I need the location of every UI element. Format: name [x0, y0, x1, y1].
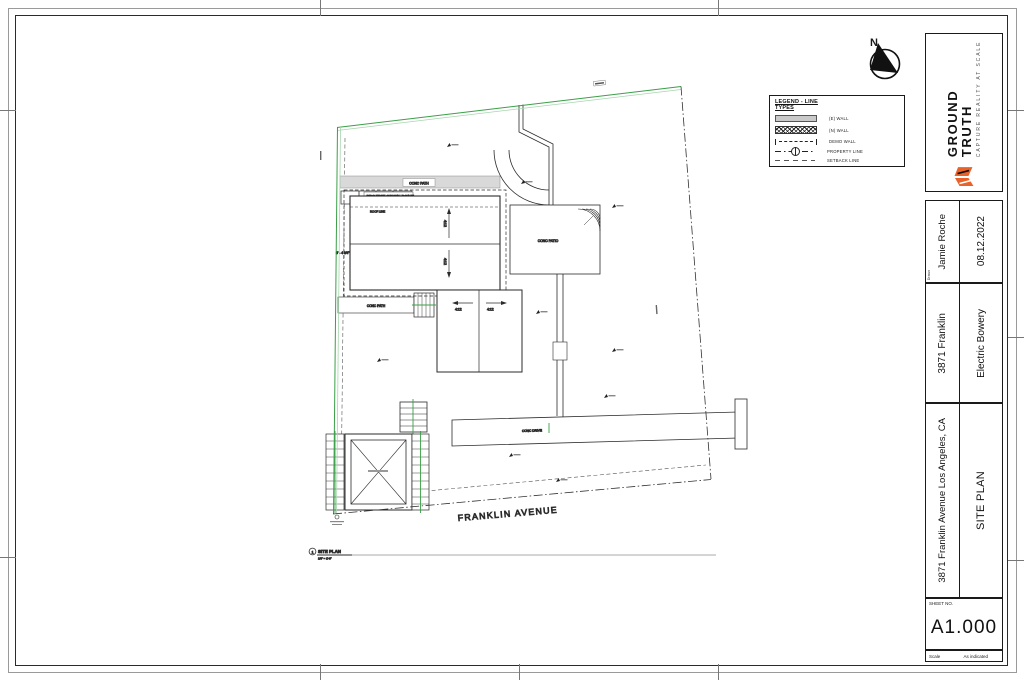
micro-label — [656, 305, 658, 314]
pl-symbol-icon — [791, 147, 800, 156]
sheet-number: A1.000 — [926, 607, 1002, 649]
existing-wall-swatch — [775, 115, 817, 122]
sheet-number-box: SHEET NO. A1.000 — [925, 598, 1003, 650]
stoop — [400, 402, 427, 432]
conc-drive — [452, 412, 738, 446]
callout-title: SITE PLAN — [318, 549, 341, 554]
street-name: FRANKLIN AVENUE — [457, 505, 558, 523]
legend-row-new-wall: (N) WALL — [775, 126, 904, 134]
legend-row-property-line: PROPERTY LINE — [775, 149, 904, 154]
sheet-no-label: SHEET NO. — [929, 601, 953, 606]
sheet-title-cell: SITE PLAN — [959, 404, 1002, 597]
legend-row-setback-line: SETBACK LINE — [775, 158, 904, 163]
brand-name: GROUND TRUTH — [946, 38, 974, 157]
project-name-cell: 3871 Franklin — [926, 284, 959, 402]
callout-scale: 1/8" = 1'-0" — [318, 557, 332, 561]
property-line-swatch — [775, 151, 815, 152]
legend-row-existing-wall: (E) WALL — [775, 115, 904, 122]
micro-label — [593, 80, 605, 86]
scale-label: Scale — [929, 654, 940, 659]
firm-name: Electric Bowery — [976, 309, 987, 378]
conc-drive-label: CONC DRIVE — [522, 428, 542, 433]
legend-label: DEMO WALL — [829, 139, 856, 144]
setback-line-swatch — [775, 160, 815, 161]
brand-tagline: CAPTURE REALITY AT SCALE — [976, 40, 982, 156]
legend-label: SETBACK LINE — [827, 158, 859, 163]
curved-wall-inner — [509, 150, 549, 190]
demo-wall-swatch — [775, 139, 817, 145]
micro-label — [320, 151, 321, 160]
drawn-label: Drawn — [927, 270, 931, 280]
conc-path-label: CONC PATH — [409, 181, 429, 185]
property-line-north — [337, 87, 681, 128]
micro-label — [332, 524, 342, 525]
firm-name-cell: Electric Bowery — [959, 284, 1002, 402]
micro-label — [368, 470, 388, 472]
slope-label: 4:12 — [455, 308, 462, 312]
scale-strip: Scale As indicated — [925, 650, 1003, 662]
sheet-title: SITE PLAN — [975, 471, 987, 530]
project-firm-row: 3871 Franklin Electric Bowery — [925, 283, 1003, 403]
legend-title: LEGEND - LINE TYPES — [775, 99, 904, 111]
drive-end-bar — [735, 399, 747, 449]
date-value: 08.12.2022 — [976, 216, 987, 266]
callout-number: 1 — [311, 550, 313, 554]
conc-path-label: CONC PATH — [367, 304, 386, 308]
ground-truth-logo-icon — [952, 164, 977, 188]
building-block-b — [437, 290, 522, 372]
project-address: 3871 Franklin Avenue Los Angeles, CA — [937, 418, 948, 583]
micro-label — [330, 521, 344, 522]
north-arrow: N — [856, 26, 908, 84]
dimension-west: 3' - 4 3/4" — [336, 251, 349, 255]
conc-patio-label: CONC PATIO — [538, 239, 559, 243]
legend-label: (E) WALL — [829, 116, 849, 121]
brand-logo-box: GROUND TRUTH CAPTURE REALITY AT SCALE — [925, 33, 1003, 192]
project-name: 3871 Franklin — [937, 313, 948, 374]
project-address-cell: 3871 Franklin Avenue Los Angeles, CA — [926, 404, 959, 597]
legend-label: PROPERTY LINE — [827, 149, 863, 154]
title-block: GROUND TRUTH CAPTURE REALITY AT SCALE Dr… — [925, 33, 1003, 662]
date-cell: 08.12.2022 — [959, 201, 1002, 282]
slope-label: 4:12 — [443, 258, 447, 265]
legend-label: (N) WALL — [829, 128, 849, 133]
drawn-by-cell: Drawn Jamie Roche — [926, 201, 959, 282]
slope-label: 4:12 — [487, 308, 494, 312]
curved-wall-outer — [494, 150, 549, 205]
scale-value: As indicated — [963, 654, 988, 659]
drawn-date-row: Drawn Jamie Roche 08.12.2022 — [925, 200, 1003, 283]
slope-label: 4:12 — [443, 220, 447, 227]
legend-row-demo-wall: DEMO WALL — [775, 139, 904, 145]
legend-box: LEGEND - LINE TYPES (E) WALL (N) WALL DE… — [769, 95, 905, 167]
new-wall-swatch — [775, 126, 817, 134]
drawn-by-value: Jamie Roche — [937, 214, 948, 269]
roof-line-label: ROOF LINE — [370, 210, 385, 214]
address-title-row: 3871 Franklin Avenue Los Angeles, CA SIT… — [925, 403, 1003, 598]
